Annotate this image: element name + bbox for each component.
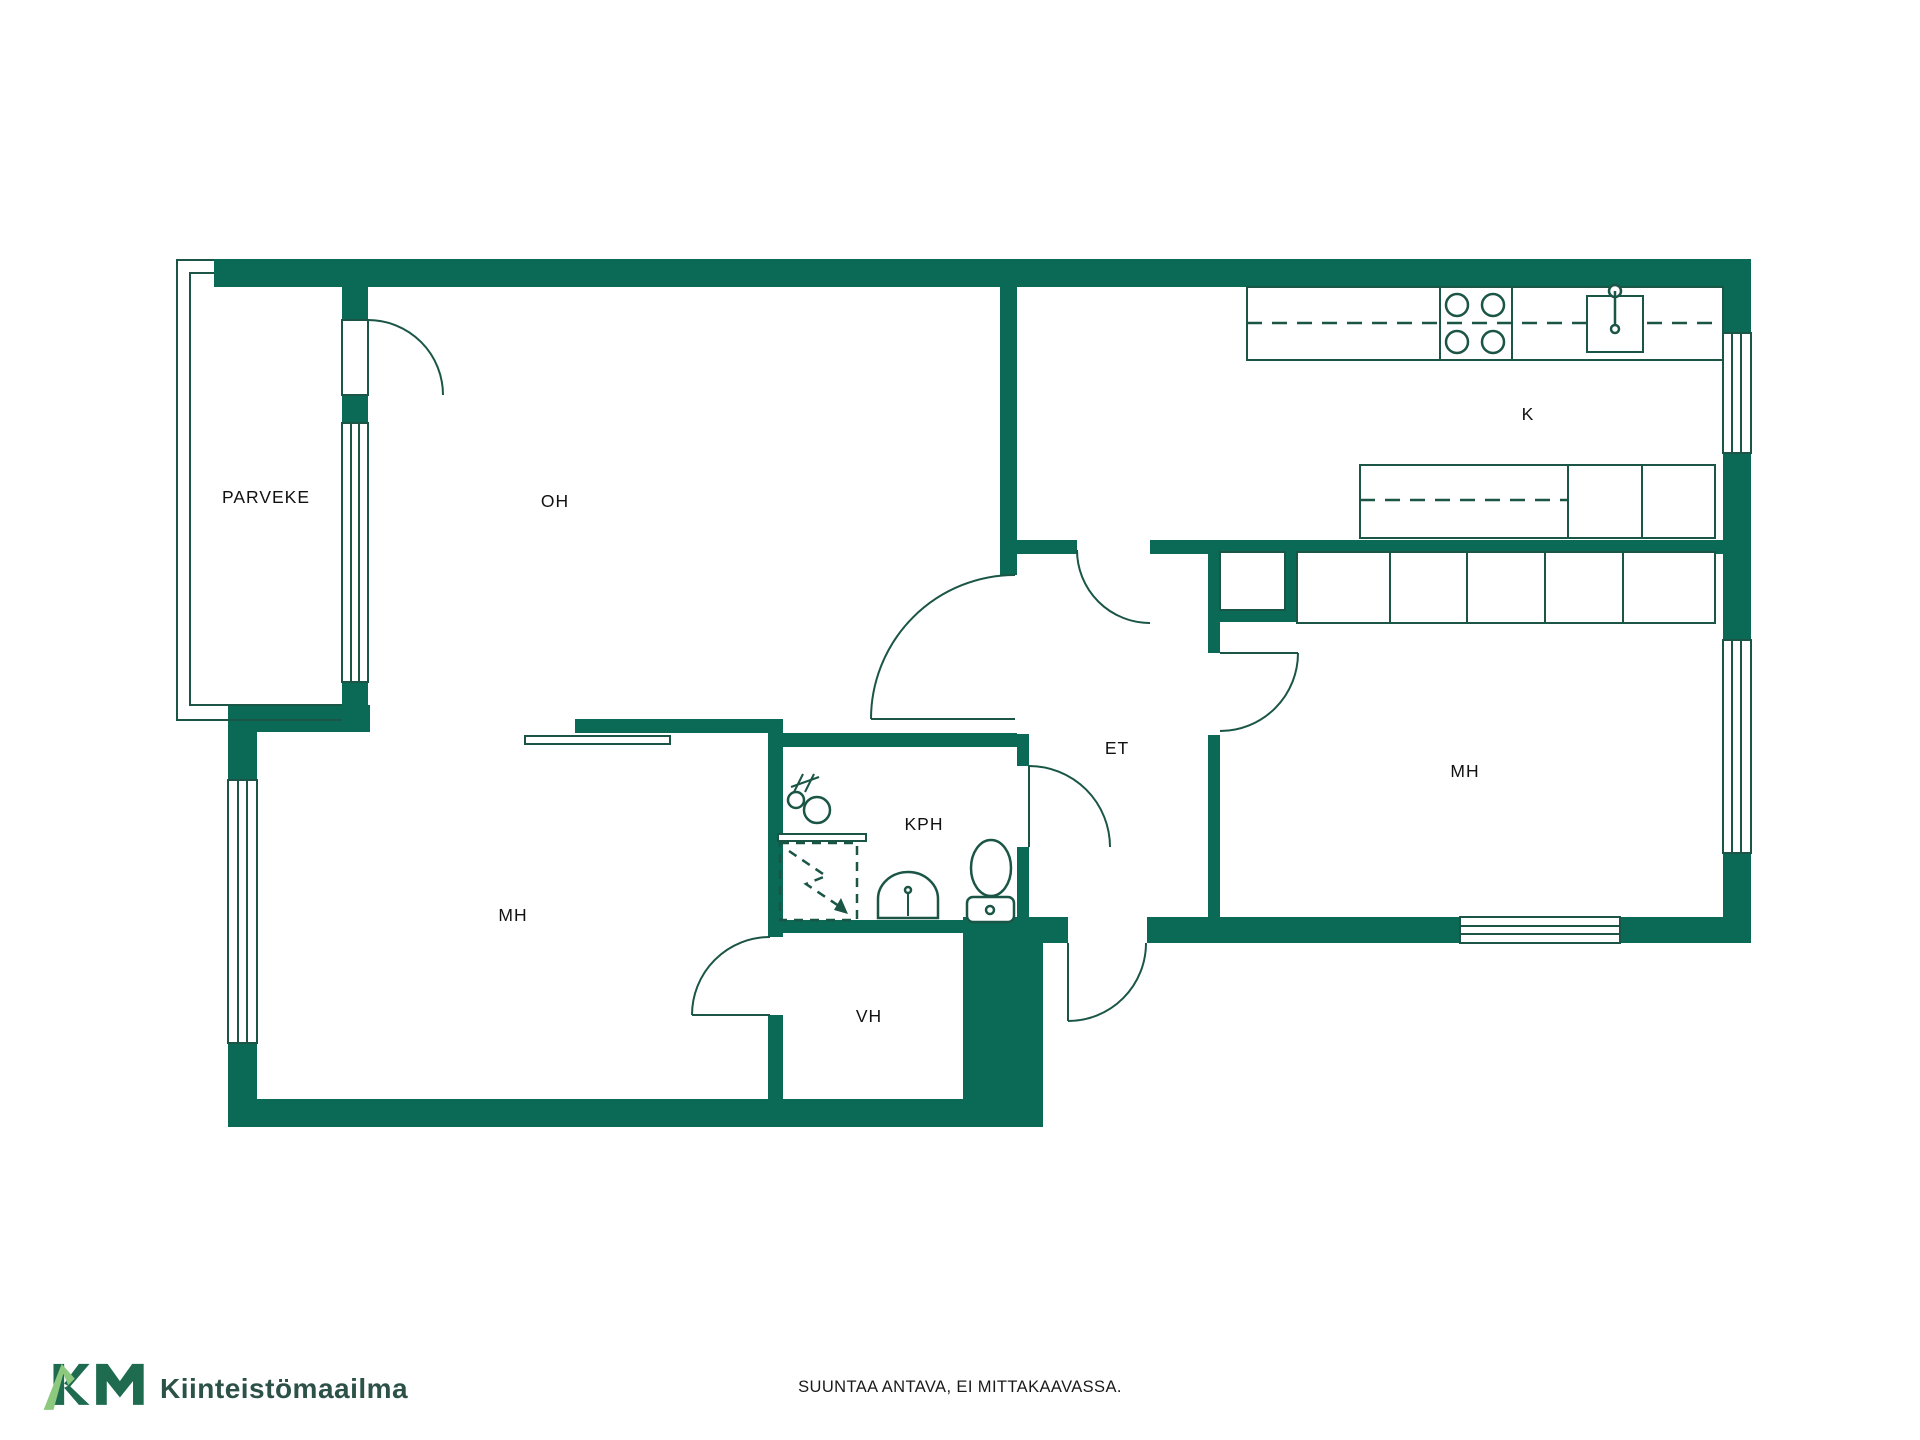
room-label-mh-left: MH bbox=[498, 905, 527, 925]
wall-k-et-west bbox=[1000, 540, 1077, 554]
room-label-k: K bbox=[1522, 404, 1535, 424]
kitchen-island bbox=[1360, 465, 1715, 538]
wall-balcony-door-stub-mid bbox=[342, 395, 368, 423]
window-mh-right bbox=[1723, 640, 1751, 853]
wall-core-block bbox=[963, 917, 1043, 1127]
room-label-parveke: PARVEKE bbox=[222, 487, 310, 507]
hand-basin-icon bbox=[878, 872, 938, 918]
door-balcony bbox=[342, 320, 443, 395]
disclaimer-text: SUUNTAA ANTAVA, EI MITTAKAAVASSA. bbox=[0, 1378, 1920, 1397]
door-vh bbox=[692, 937, 770, 1015]
floorplan-page: PARVEKE OH K ET KPH MH VH MH Kiinteistöm… bbox=[0, 0, 1920, 1440]
wardrobe-row-mh-right bbox=[1297, 552, 1715, 623]
wall-et-mh-lower bbox=[1208, 735, 1220, 917]
wall-exterior-bottom-right-b bbox=[1620, 917, 1751, 943]
wall-oh-k-divider bbox=[1000, 287, 1017, 575]
room-label-mh-right: MH bbox=[1450, 761, 1479, 781]
walls bbox=[214, 259, 1751, 1127]
wall-exterior-bottom-left bbox=[228, 1099, 1043, 1127]
wall-exterior-bottom-right-a bbox=[1147, 917, 1460, 943]
wall-left-window-stub bbox=[228, 732, 257, 780]
wall-kph-north bbox=[768, 733, 1017, 747]
wall-vh-west-lower bbox=[768, 1015, 783, 1099]
wall-balcony-door-stub-top bbox=[342, 287, 368, 320]
wall-exterior-left-lower bbox=[228, 1043, 257, 1103]
kitchen-fixtures bbox=[1247, 285, 1723, 538]
wall-kph-east-lower bbox=[1017, 847, 1029, 933]
shower-shelf bbox=[778, 834, 866, 841]
wall-exterior-top bbox=[214, 259, 1751, 287]
doors bbox=[342, 320, 1298, 1021]
window-mh-left bbox=[228, 780, 257, 1043]
sink-icon bbox=[1587, 285, 1643, 352]
wall-closet-bottom bbox=[1208, 610, 1297, 622]
door-sliding-mh-left bbox=[525, 736, 670, 744]
shower-icon bbox=[780, 843, 857, 920]
door-mh-right bbox=[1220, 653, 1298, 731]
door-kph bbox=[1029, 766, 1110, 847]
room-label-kph: KPH bbox=[905, 814, 944, 834]
window-balcony-west bbox=[342, 423, 368, 682]
wall-et-mh-upper bbox=[1208, 554, 1220, 653]
wall-balcony-window-stub bbox=[342, 682, 368, 712]
toilet-icon bbox=[967, 840, 1014, 922]
window-mh-right-bottom bbox=[1460, 917, 1620, 943]
room-label-et: ET bbox=[1105, 738, 1129, 758]
wall-kph-east-upper bbox=[1017, 734, 1029, 766]
room-label-vh: VH bbox=[856, 1006, 882, 1026]
wall-oh-mh-left bbox=[575, 719, 783, 733]
floorplan-drawing: PARVEKE OH K ET KPH MH VH MH bbox=[0, 0, 1920, 1440]
bathroom-fixtures bbox=[778, 774, 1014, 922]
door-oh-hall bbox=[871, 575, 1015, 719]
room-label-oh: OH bbox=[541, 491, 569, 511]
wall-entry-stub bbox=[1043, 917, 1068, 943]
door-entry bbox=[1068, 943, 1146, 1021]
door-kitchen bbox=[1077, 550, 1150, 623]
window-kitchen-right bbox=[1723, 333, 1751, 453]
hall-closet bbox=[1220, 552, 1285, 610]
washbasin-icon bbox=[788, 774, 830, 823]
